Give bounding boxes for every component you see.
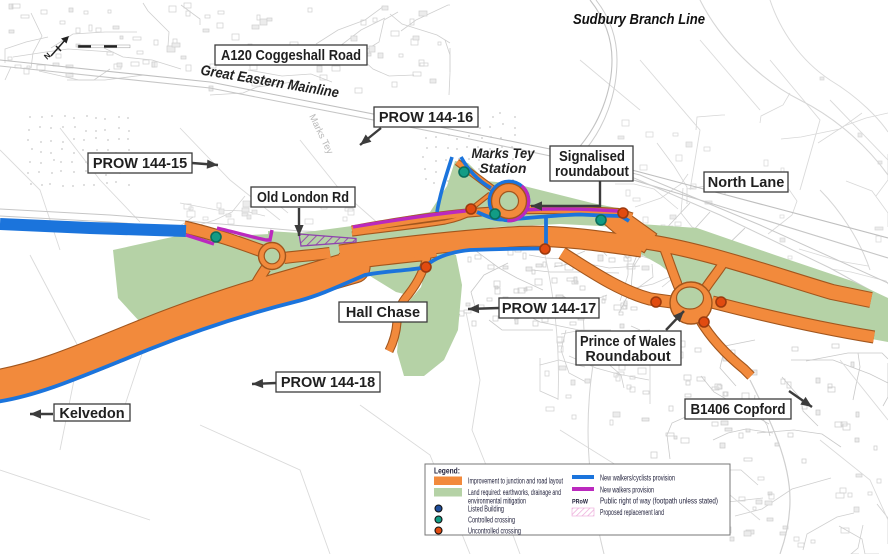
svg-text:PRoW: PRoW [572,499,589,506]
svg-text:Roundabout: Roundabout [585,349,671,365]
svg-text:Kelvedon: Kelvedon [59,406,124,422]
svg-text:PROW 144-17: PROW 144-17 [502,301,596,317]
svg-text:Controlled crossing: Controlled crossing [468,516,515,525]
svg-text:PROW 144-15: PROW 144-15 [93,156,187,172]
svg-text:PROW 144-16: PROW 144-16 [379,110,473,126]
svg-text:Station: Station [480,160,527,176]
svg-text:Public right of way (footpath: Public right of way (footpath unless sta… [600,497,718,506]
svg-text:Improvement to junction and ro: Improvement to junction and road layout [468,477,564,486]
svg-text:Hall Chase: Hall Chase [346,305,420,321]
svg-text:Prince of Wales: Prince of Wales [580,334,676,350]
svg-text:Signalised: Signalised [559,149,625,165]
svg-text:Legend:: Legend: [434,466,460,476]
svg-text:New walkers/cyclists provision: New walkers/cyclists provision [600,474,675,483]
svg-text:Listed Building: Listed Building [468,505,504,514]
svg-text:PROW 144-18: PROW 144-18 [281,375,375,391]
svg-text:B1406 Copford: B1406 Copford [691,402,786,418]
svg-text:Sudbury Branch Line: Sudbury Branch Line [573,12,705,28]
svg-text:Old London Rd: Old London Rd [257,190,349,206]
svg-text:A120 Coggeshall Road: A120 Coggeshall Road [221,48,361,64]
svg-text:Proposed replacement land: Proposed replacement land [600,508,664,517]
svg-text:roundabout: roundabout [555,164,629,180]
svg-text:New walkers provision: New walkers provision [600,486,654,495]
svg-text:North Lane: North Lane [708,175,785,191]
svg-text:Uncontrolled crossing: Uncontrolled crossing [468,527,521,536]
svg-text:Marks Tey: Marks Tey [472,145,536,161]
